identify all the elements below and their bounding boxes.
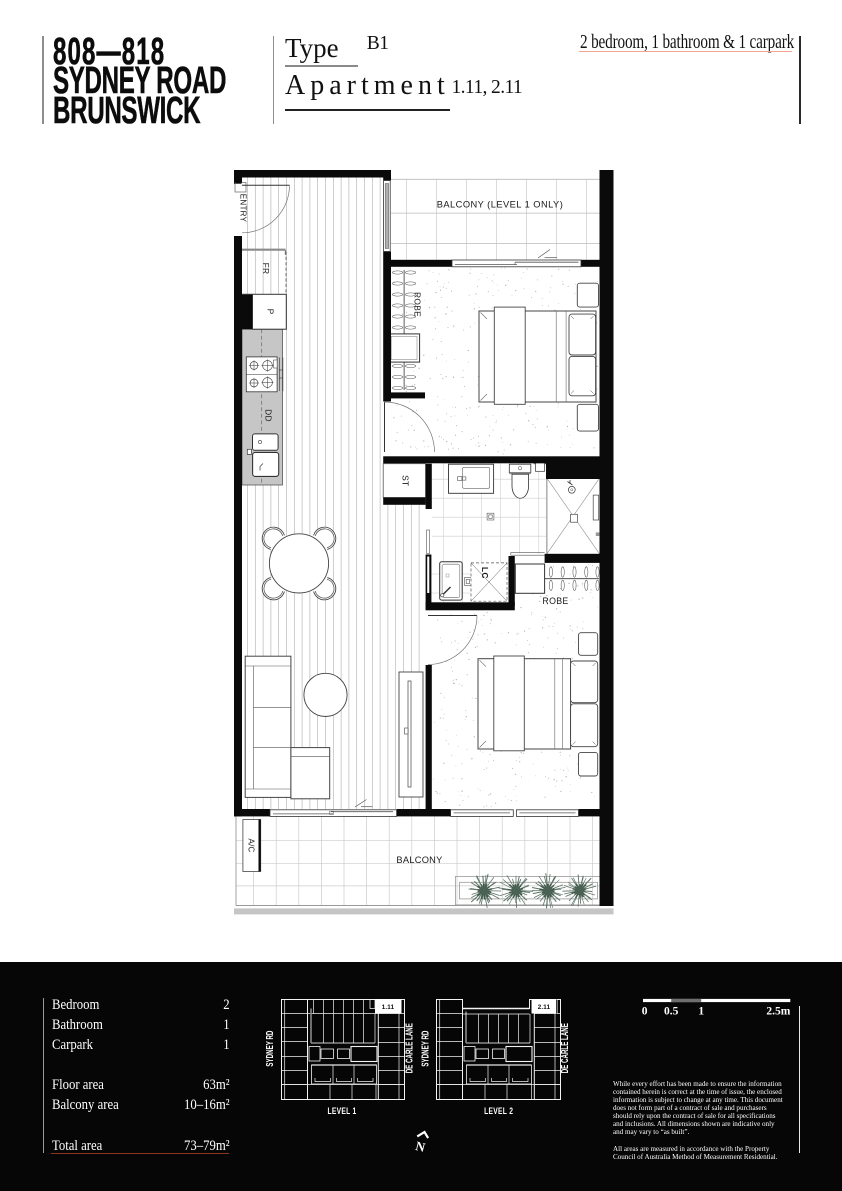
svg-text:P: P (265, 309, 275, 315)
svg-text:LEVEL 1: LEVEL 1 (327, 1106, 356, 1116)
svg-text:ST: ST (400, 475, 410, 486)
svg-text:FR: FR (261, 263, 271, 275)
svg-text:2.5m: 2.5m (766, 1006, 790, 1018)
svg-text:0: 0 (642, 1006, 648, 1018)
svg-text:N: N (414, 1138, 427, 1155)
svg-text:0.5: 0.5 (664, 1006, 679, 1018)
svg-text:DE CARLE LANE: DE CARLE LANE (403, 1023, 415, 1073)
svg-text:DE CARLE LANE: DE CARLE LANE (558, 1023, 570, 1073)
svg-text:ROBE: ROBE (412, 292, 422, 317)
svg-text:SYDNEY RD: SYDNEY RD (263, 1031, 275, 1067)
svg-text:A/C: A/C (246, 839, 255, 853)
svg-text:BALCONY: BALCONY (396, 855, 442, 865)
svg-text:BALCONY (LEVEL 1 ONLY): BALCONY (LEVEL 1 ONLY) (437, 200, 564, 210)
svg-text:2.11: 2.11 (538, 1004, 551, 1011)
svg-text:ROBE: ROBE (542, 596, 568, 606)
svg-text:LC: LC (480, 567, 490, 579)
svg-text:ENTRY: ENTRY (238, 194, 247, 223)
svg-text:DD: DD (263, 409, 273, 422)
svg-text:1.11: 1.11 (382, 1004, 395, 1011)
svg-text:LEVEL 2: LEVEL 2 (484, 1106, 513, 1116)
svg-text:SYDNEY RD: SYDNEY RD (419, 1031, 431, 1067)
svg-text:1: 1 (698, 1006, 704, 1018)
